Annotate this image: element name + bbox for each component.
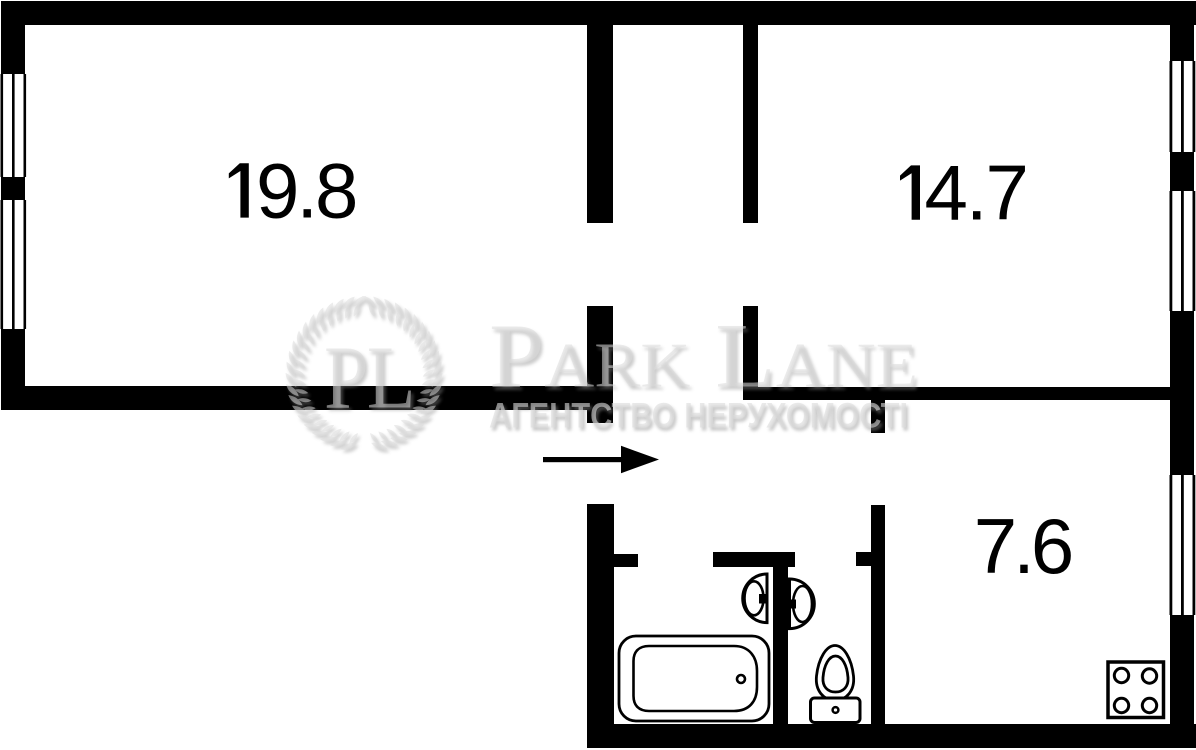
svg-text:PL: PL (324, 329, 414, 428)
svg-text:4.7: 4.7 (925, 149, 1027, 237)
svg-text:7.6: 7.6 (974, 502, 1071, 590)
svg-text:АГЕНТСТВО НЕРУХОМОСТІ: АГЕНТСТВО НЕРУХОМОСТІ (489, 397, 908, 436)
svg-text:Park Lane: Park Lane (489, 305, 918, 407)
svg-text:9.8: 9.8 (256, 147, 355, 235)
